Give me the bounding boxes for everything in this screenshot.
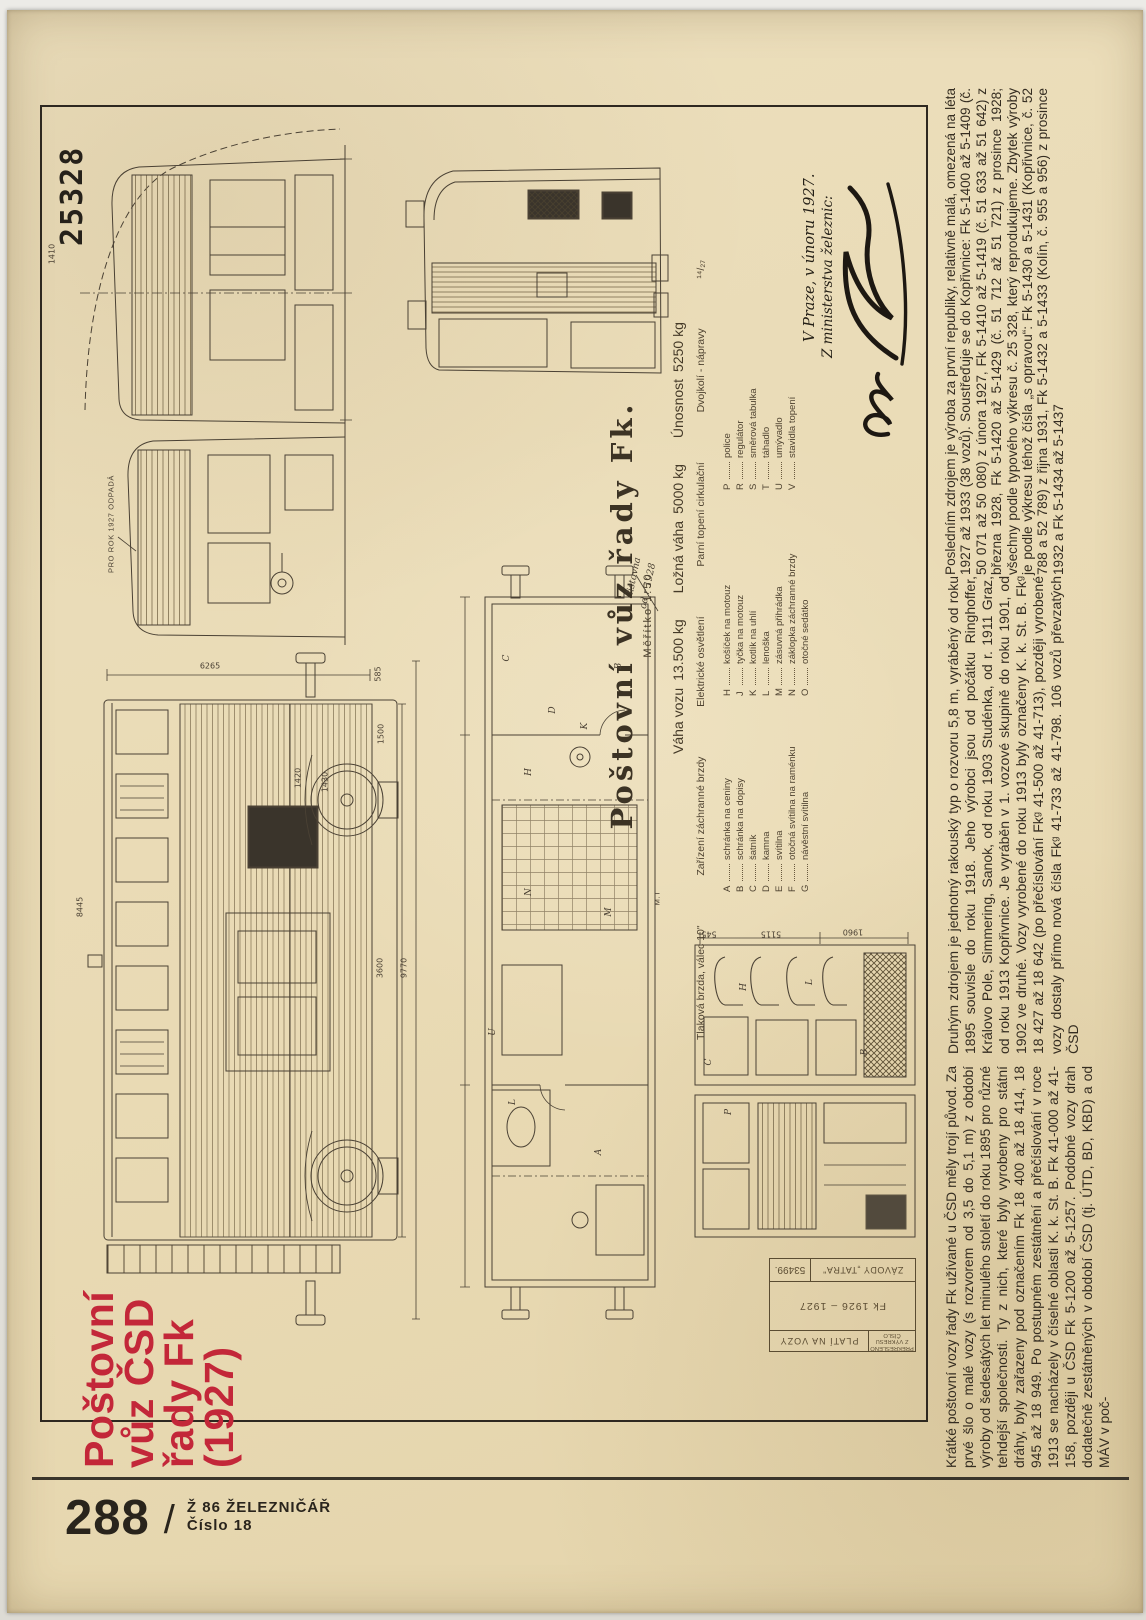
drawing-annotation: N: [524, 888, 534, 896]
article-title-line: vůz ČSD: [119, 1250, 159, 1468]
view-side-elevation: [88, 653, 420, 1325]
legend-item-key: P: [721, 479, 734, 490]
legend-equipment-item: Zařízení záchranné brzdy: [695, 757, 707, 876]
legend-item: Cšatník: [747, 724, 760, 892]
signature-from: Z ministerstva železnic:: [820, 150, 836, 450]
legend-item-dots: [768, 864, 769, 881]
journal-name: Ž 86 ŽELEZNIČÁŘ: [187, 1499, 331, 1516]
journal-info: Ž 86 ŽELEZNIČÁŘ Číslo 18: [187, 1499, 331, 1535]
legend-weight: Váha vozu13.500 kg: [670, 619, 686, 754]
legend-item-label: otočné sedátko: [799, 600, 812, 664]
legend-item-label: směrová tabulka: [747, 388, 760, 458]
legend-item-dots: [768, 462, 769, 479]
legend-item: Ssměrová tabulka: [747, 320, 760, 490]
legend-equipment-line: Tlaková brzda, válec 10"Zařízení záchran…: [695, 260, 707, 1040]
dimension-label: 1500: [377, 724, 386, 744]
legend-item-label: šatník: [747, 835, 760, 860]
article-column-2: Druhým zdrojem je jednotný rakouský typ …: [945, 576, 1117, 1054]
stamp-table: PŘEKRESLENO Z VÝKRESU ČÍSLO PLATÍ NA VOZ…: [769, 1258, 916, 1352]
legend-equipment-item: Elektrické osvětlení: [695, 616, 707, 706]
drawing-annotation: A: [594, 1149, 604, 1156]
legend-item-dots: [781, 462, 782, 479]
legend-weight-label: Ložná váha: [670, 521, 686, 593]
legend-weight-label: Únosnost: [670, 379, 686, 438]
legend-item-dots: [729, 462, 730, 479]
legend-equipment-item: Dvojkolí - nápravy: [695, 328, 707, 412]
legend-item-key: E: [773, 881, 786, 892]
legend-equipment-item: Parní topení cirkulační: [695, 462, 707, 566]
drawing-annotation: D: [548, 706, 558, 713]
page-footer: 288 / Ž 86 ŽELEZNIČÁŘ Číslo 18: [65, 1496, 331, 1543]
legend-item: Nzáklopka záchranné brzdy: [786, 546, 799, 696]
legend-item-label: návěstní svítilna: [799, 792, 812, 860]
dimension-label: 6265: [200, 662, 220, 671]
drawing-annotation: C: [704, 1059, 714, 1066]
drawing-annotation: C: [502, 655, 512, 662]
signature-place-date: V Praze, v únoru 1927.: [802, 150, 818, 450]
drawing-annotation: H: [739, 983, 749, 991]
drawing-number: 25328: [55, 114, 101, 246]
legend-item: Jtyčka na motouz: [734, 546, 747, 696]
handwritten-signature: [836, 160, 908, 450]
legend-item-dots: [794, 668, 795, 685]
drawing-annotation: H: [524, 768, 534, 776]
dimension-label: 1410: [48, 244, 57, 264]
legend-item-key: O: [799, 685, 812, 696]
legend-axle-fraction: ¹⁴/₂₇: [695, 260, 707, 279]
legend-item: Ttáhadlo: [760, 320, 773, 490]
legend-item-label: umývadlo: [773, 417, 786, 458]
drawing-annotation: M.T: [653, 891, 662, 906]
view-cross-section-1: [80, 129, 352, 435]
legend-item: Bschránka na dopisy: [734, 724, 747, 892]
legend-item-key: L: [760, 685, 773, 696]
legend-item-key: F: [786, 881, 799, 892]
legend-weight: Únosnost5250 kg: [670, 322, 686, 438]
legend-weight-label: Váha vozu: [670, 688, 686, 754]
legend-columns: Aschránka na ceninyBschránka na dopisyCš…: [721, 260, 812, 1040]
legend-item-label: svítilna: [773, 830, 786, 860]
legend-item-dots: [781, 668, 782, 685]
legend-item-label: regulátor: [734, 421, 747, 459]
legend-item: Vstavidla topení: [786, 320, 799, 490]
legend-item-key: S: [747, 479, 760, 490]
legend-item-dots: [729, 864, 730, 881]
legend-item-key: T: [760, 479, 773, 490]
legend-item-label: otočná svítilna na raménku: [786, 746, 799, 860]
legend-item: Esvítilna: [773, 724, 786, 892]
stamp-redrawn-cell: PŘEKRESLENO Z VÝKRESU ČÍSLO: [868, 1331, 915, 1351]
dimension-label: 5115: [761, 930, 781, 939]
legend-item-label: táhadlo: [760, 427, 773, 458]
legend-item-key: B: [734, 881, 747, 892]
journal-issue: Číslo 18: [187, 1517, 253, 1534]
legend-column-1: Aschránka na ceninyBschránka na dopisyCš…: [721, 724, 812, 892]
legend-item-key: R: [734, 479, 747, 490]
dimension-label: 9770: [400, 958, 409, 978]
legend-item-key: A: [721, 881, 734, 892]
article-title-line: řady Fk: [159, 1250, 199, 1468]
legend-item-key: C: [747, 881, 760, 892]
legend-item-key: G: [799, 881, 812, 892]
legend-item-label: schránka na ceniny: [721, 778, 734, 860]
legend-item: Gnávěstní svítilna: [799, 724, 812, 892]
stamp-series-cell: Fk 1926 – 1927: [770, 1281, 915, 1330]
legend-item-key: U: [773, 479, 786, 490]
legend-item-key: M: [773, 685, 786, 696]
footer-separator: /: [164, 1498, 175, 1543]
legend-item-dots: [742, 668, 743, 685]
article-title-line: Poštovní: [79, 1250, 119, 1468]
legend-column-3: PpoliceRregulátorSsměrová tabulkaTtáhadl…: [721, 320, 812, 490]
legend-item-label: košíček na motouz: [721, 585, 734, 664]
legend-item-dots: [742, 864, 743, 881]
article-column-3: Posledním zdrojem je výroba za první rep…: [943, 88, 1143, 575]
legend-title: Poštovní vůz řady Fk.: [605, 260, 639, 1040]
legend-item-dots: [742, 462, 743, 479]
dimension-label: 8445: [76, 897, 85, 917]
legend-item: Uumývadlo: [773, 320, 786, 490]
legend-item: Ppolice: [721, 320, 734, 490]
legend-item-dots: [794, 864, 795, 881]
legend-weight-value: 13.500 kg: [670, 619, 686, 681]
legend-item-dots: [807, 668, 808, 685]
drawing-annotation: M: [604, 907, 614, 916]
legend-weight: Ložná váha5000 kg: [670, 464, 686, 593]
legend-item-key: H: [721, 685, 734, 696]
legend-item-label: stavidla topení: [786, 397, 799, 458]
legend-item-dots: [755, 864, 756, 881]
legend-item-label: lenoška: [760, 631, 773, 664]
stamp-works-cell: ZÁVODY „TATRA": [810, 1259, 915, 1281]
drawing-annotation: K: [580, 723, 590, 730]
dimension-label: 1960: [843, 928, 863, 937]
legend-item-dots: [768, 668, 769, 685]
article-title-line: (1927): [199, 1250, 239, 1468]
stamp-number-cell: 53499.: [770, 1259, 810, 1281]
legend-item: Hkošíček na motouz: [721, 546, 734, 696]
legend-item-key: D: [760, 881, 773, 892]
legend-weights: Váha vozu13.500 kgLožná váha5000 kgÚnosn…: [670, 260, 686, 754]
stamp-valid-cell: PLATÍ NA VOZY: [770, 1331, 868, 1351]
legend-item-dots: [781, 864, 782, 881]
drawing-annotation: P: [724, 1109, 734, 1115]
legend-item: Mzásuvná přihrádka: [773, 546, 786, 696]
page-number: 288: [65, 1496, 150, 1541]
legend-item-dots: [755, 668, 756, 685]
legend-column-2: Hkošíček na motouzJtyčka na motouzKkotlí…: [721, 546, 812, 696]
dimension-label: 545: [701, 930, 716, 939]
legend-item-key: J: [734, 685, 747, 696]
view-cross-section-2: [118, 430, 345, 645]
legend-item-label: kotlík na uhlí: [747, 611, 760, 664]
legend-scale: Měřítko 1:50: [642, 260, 654, 1040]
dimension-label: 1430: [321, 772, 330, 792]
legend-item-label: záklopka záchranné brzdy: [786, 554, 799, 664]
article-column-1: Krátké poštovní vozy řady Fk užívané u Č…: [943, 1066, 1115, 1468]
legend-item: Rregulátor: [734, 320, 747, 490]
legend-item: Fotočná svítilna na raménku: [786, 724, 799, 892]
legend-item-key: N: [786, 685, 799, 696]
drawing-annotation: B: [614, 663, 624, 670]
article-title: Poštovní vůz ČSD řady Fk (1927): [79, 1250, 243, 1468]
legend-item: Aschránka na ceniny: [721, 724, 734, 892]
legend-item-label: kamna: [760, 831, 773, 860]
legend-item-key: V: [786, 479, 799, 490]
magazine-page: 25328 Poštovní vůz ČSD řady Fk (1927) Po…: [7, 10, 1143, 1613]
legend-item-dots: [755, 462, 756, 479]
dimension-label: 1420: [294, 768, 303, 788]
legend-item-dots: [807, 864, 808, 881]
drawing-annotation: U: [488, 1028, 498, 1036]
legend-item-dots: [794, 462, 795, 479]
dimension-label: 585: [374, 666, 383, 681]
signature-block: V Praze, v únoru 1927. Z ministerstva že…: [802, 150, 932, 450]
drawing-annotation: L: [805, 979, 815, 985]
legend-item-label: police: [721, 433, 734, 458]
legend-item-label: tyčka na motouz: [734, 595, 747, 664]
dimension-label: 3600: [376, 958, 385, 978]
drawing-annotation: B: [860, 1049, 870, 1056]
footer-rule: [32, 1477, 1129, 1480]
legend-item: Dkamna: [760, 724, 773, 892]
legend-weight-value: 5000 kg: [670, 464, 686, 514]
legend-item-label: schránka na dopisy: [734, 778, 747, 860]
legend-item: Ootočné sedátko: [799, 546, 812, 696]
legend-weight-value: 5250 kg: [670, 322, 686, 372]
drawing-annotation: L: [508, 1099, 518, 1105]
legend-item-label: zásuvná přihrádka: [773, 586, 786, 664]
legend-equipment-item: Tlaková brzda, válec 10": [695, 925, 707, 1040]
legend-item: Kkotlík na uhlí: [747, 546, 760, 696]
legend-item: Llenoška: [760, 546, 773, 696]
legend-item-dots: [729, 668, 730, 685]
drawing-annotation: PRO ROK 1927 ODPADÁ: [107, 475, 116, 573]
legend-item-key: K: [747, 685, 760, 696]
